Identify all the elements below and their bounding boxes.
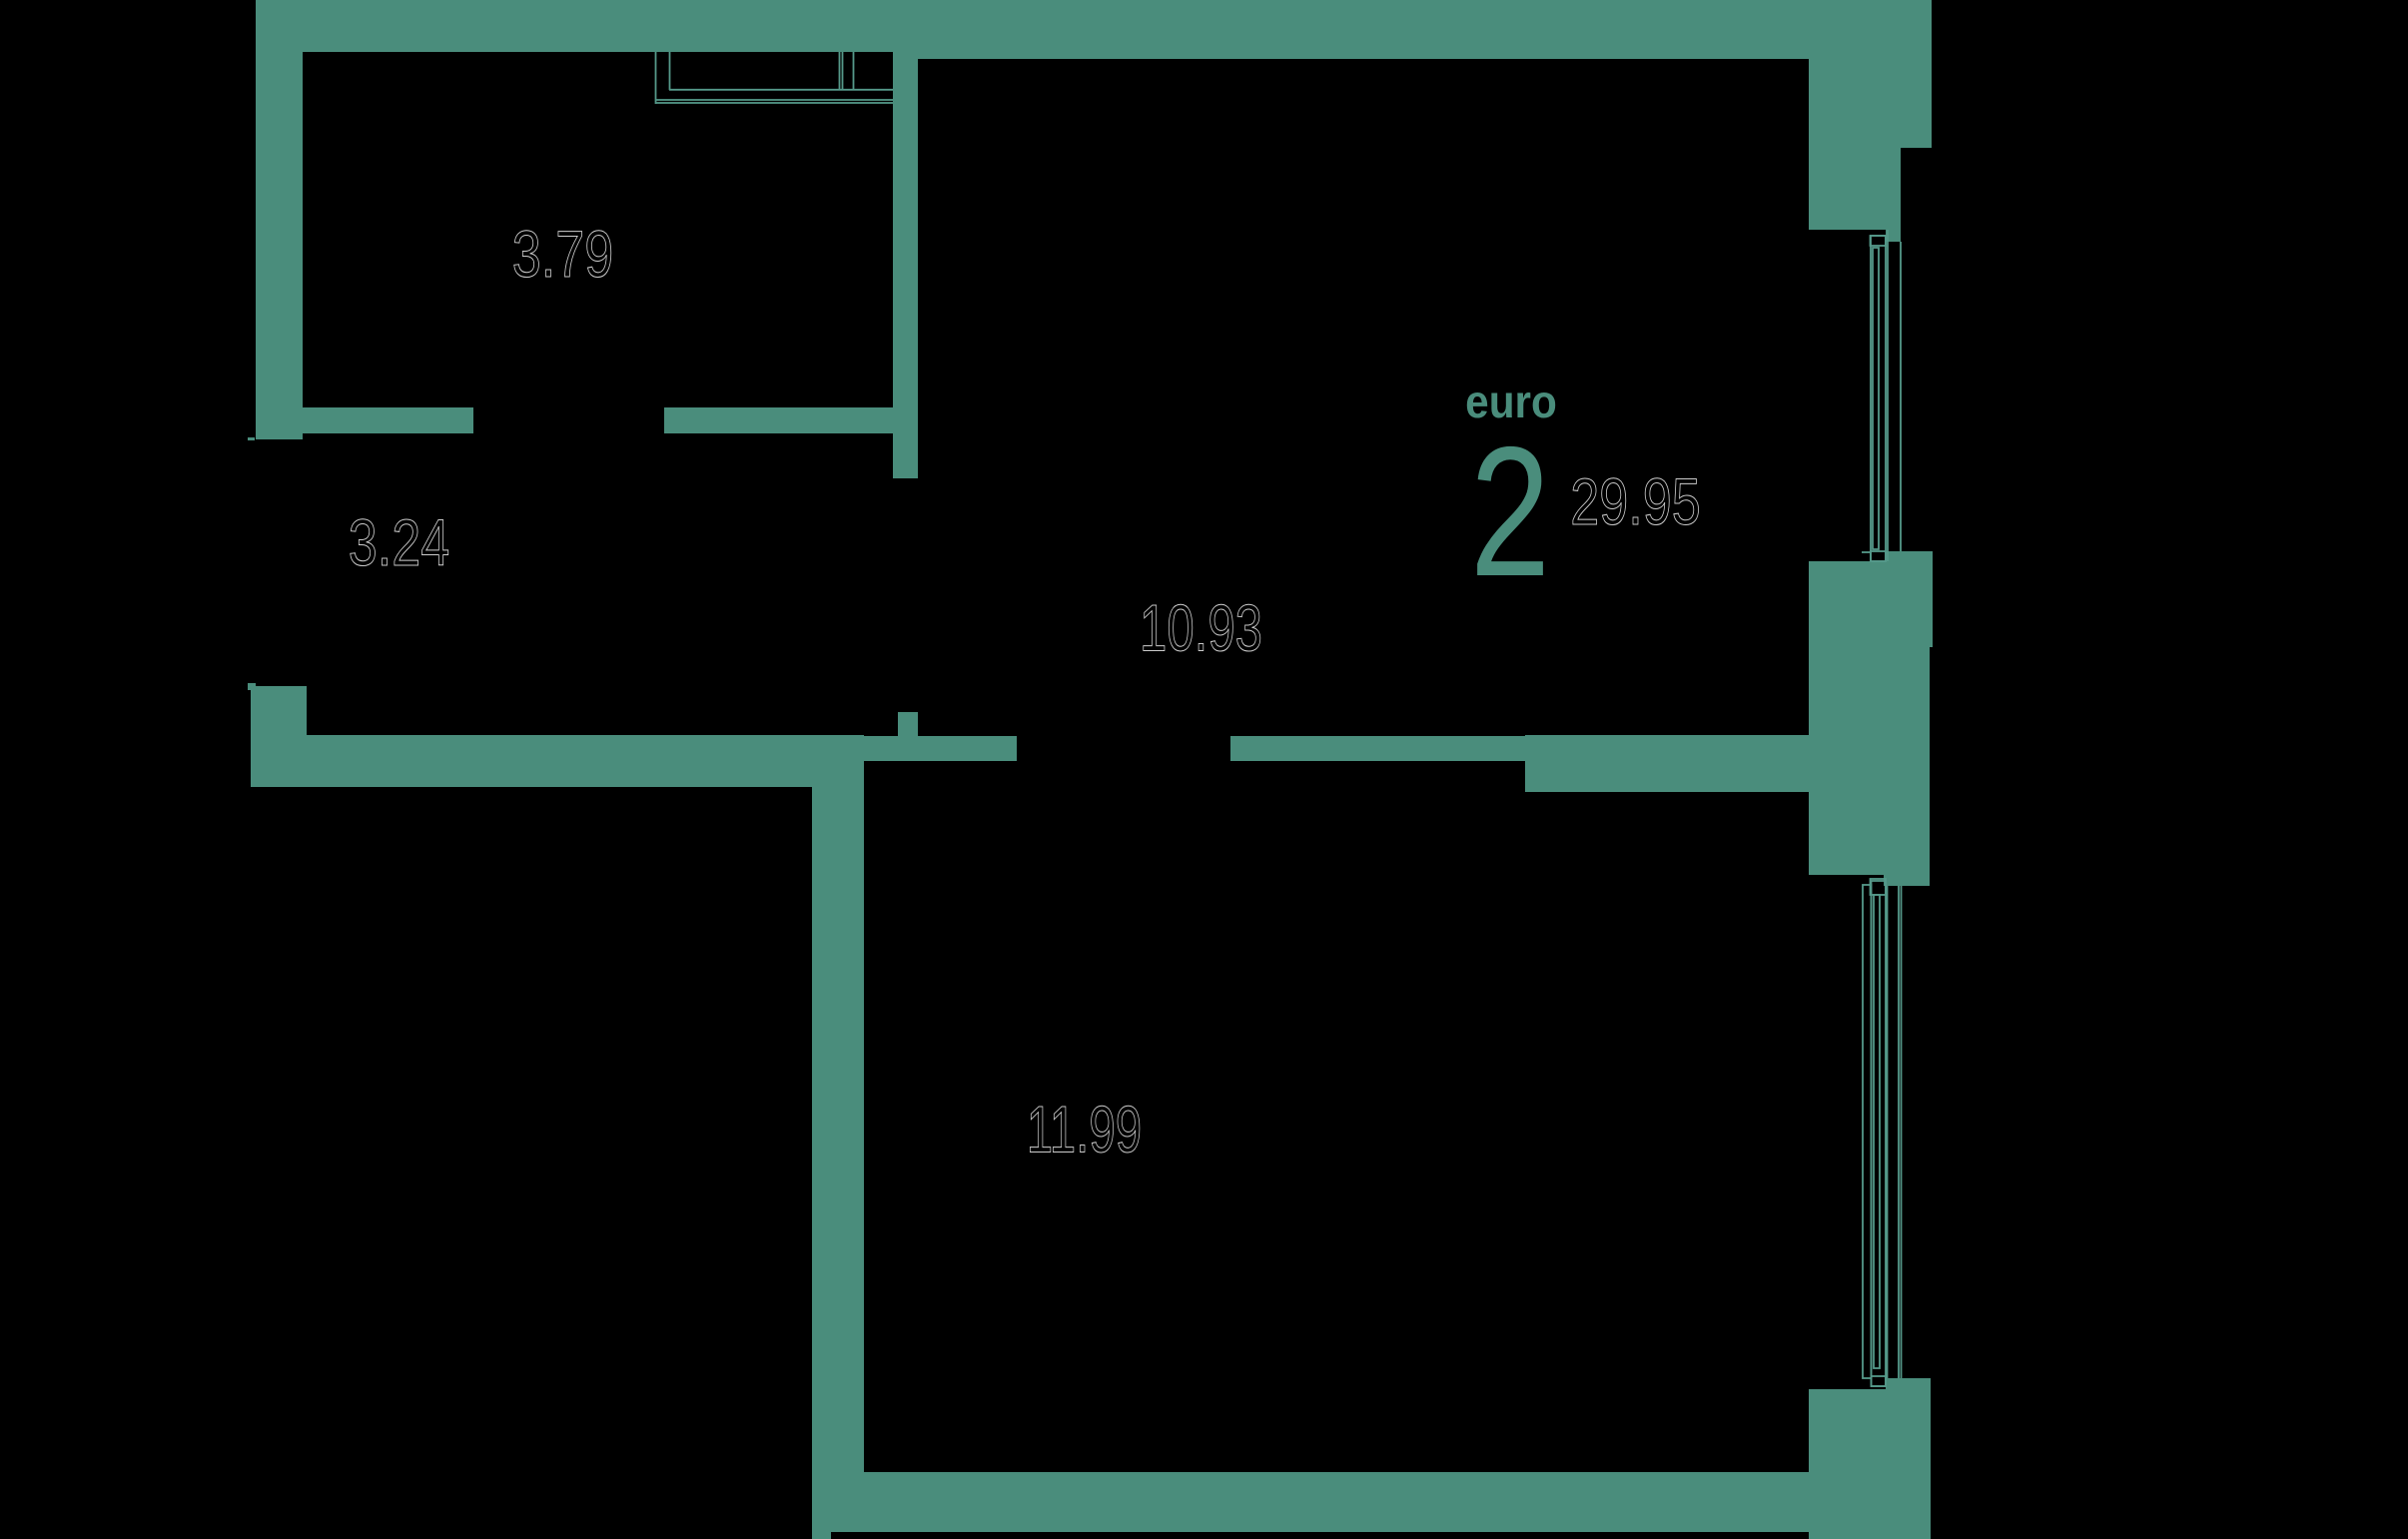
svg-text:3.24: 3.24	[349, 505, 449, 579]
svg-text:10.93: 10.93	[1140, 592, 1262, 666]
svg-text:2: 2	[1470, 409, 1550, 615]
svg-text:11.99: 11.99	[1027, 1094, 1142, 1166]
svg-text:29.95: 29.95	[1570, 464, 1700, 538]
svg-text:3.79: 3.79	[512, 217, 613, 291]
